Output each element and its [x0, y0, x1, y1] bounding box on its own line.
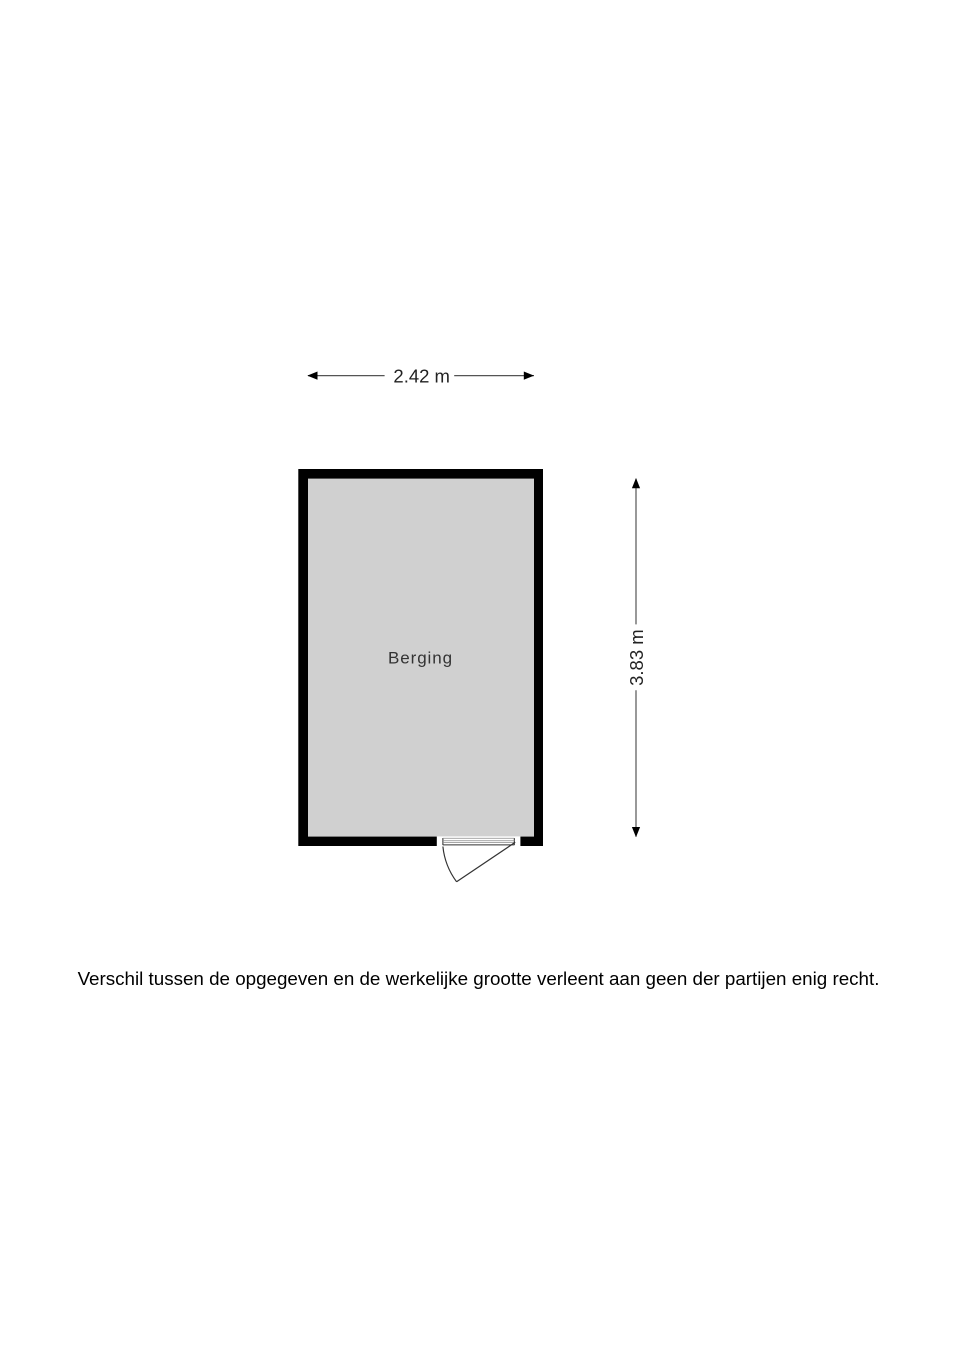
svg-text:Berging: Berging	[388, 649, 453, 668]
svg-text:2.42 m: 2.42 m	[393, 366, 450, 387]
svg-text:Verschil tussen de opgegeven e: Verschil tussen de opgegeven en de werke…	[78, 968, 880, 989]
svg-text:3.83 m: 3.83 m	[626, 629, 647, 686]
